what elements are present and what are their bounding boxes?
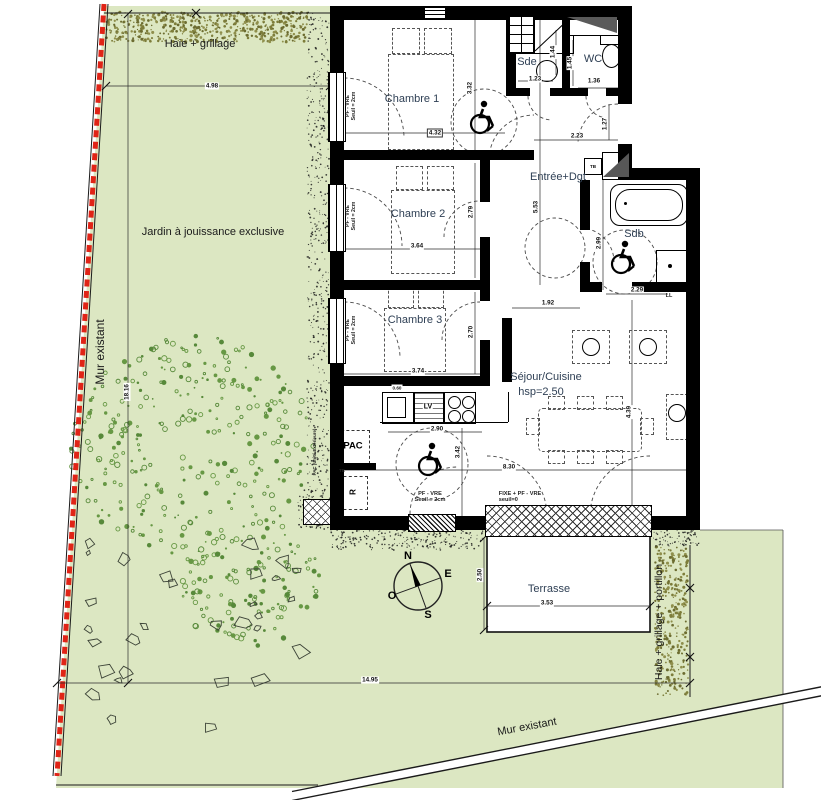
wall-segment bbox=[580, 282, 602, 292]
counter-edge bbox=[380, 422, 508, 423]
armchair-seat bbox=[639, 338, 657, 356]
room-label-sdb: Sdb bbox=[624, 228, 644, 240]
room-label-sejour: Séjour/Cuisine bbox=[510, 371, 582, 383]
compass-east: E bbox=[444, 568, 451, 580]
compass-west: O bbox=[388, 590, 397, 602]
bed-pillow bbox=[424, 28, 452, 54]
dim-label: 3.64 bbox=[410, 243, 424, 250]
wall-segment bbox=[562, 6, 570, 92]
wall-segment bbox=[506, 88, 530, 96]
vanity-unit bbox=[656, 250, 688, 286]
opening-note: PF - VRE Seuil = 2cm bbox=[345, 92, 357, 121]
wall-segment bbox=[330, 140, 344, 184]
shelf-unit bbox=[508, 16, 534, 54]
dim-label: 4.32 bbox=[427, 129, 443, 138]
dim-label: 0.60 bbox=[392, 385, 403, 392]
vent-opening bbox=[424, 7, 446, 20]
wall-segment bbox=[454, 516, 488, 530]
dim-label: 2.90 bbox=[430, 426, 444, 433]
opening-note: FIXE + PF - VRE seuil=0 bbox=[499, 491, 541, 503]
wall-segment bbox=[580, 180, 590, 230]
plant bbox=[668, 404, 686, 422]
wall-segment bbox=[330, 516, 408, 530]
room-label-sde: Sde bbox=[517, 56, 537, 68]
window bbox=[328, 184, 346, 252]
chair bbox=[577, 396, 594, 410]
chair bbox=[640, 418, 654, 435]
counter-edge bbox=[508, 392, 509, 422]
wall-segment bbox=[480, 237, 490, 301]
wall-segment bbox=[550, 88, 576, 96]
dim-label: 1.36 bbox=[587, 78, 601, 85]
kitchen-sink-bowl bbox=[387, 397, 406, 418]
chair bbox=[548, 450, 565, 464]
dim-label: 8.30 bbox=[502, 464, 516, 471]
wall-segment bbox=[686, 168, 700, 530]
dim-label: 3.53 bbox=[540, 600, 554, 607]
chair bbox=[577, 450, 594, 464]
wall-segment bbox=[480, 160, 490, 202]
wall-segment bbox=[576, 88, 588, 96]
burner bbox=[462, 396, 475, 409]
dim-label: 4.98 bbox=[205, 83, 219, 90]
dim-label: 1.45 bbox=[567, 56, 574, 70]
armchair-seat bbox=[582, 338, 600, 356]
bed-pillow bbox=[392, 28, 420, 54]
tb-label: TB bbox=[590, 164, 596, 169]
bed-pillow bbox=[427, 166, 454, 190]
wall-segment bbox=[330, 362, 344, 530]
opening-note: PF - VRE Seuil = 2cm bbox=[345, 316, 357, 345]
room-label-wc: WC bbox=[584, 53, 602, 65]
dim-label: 2.23 bbox=[570, 133, 584, 140]
pac-exterior-unit bbox=[303, 499, 331, 525]
dim-label: 1.23 bbox=[528, 76, 542, 83]
opening-threshold: Seuil = 2cm bbox=[351, 92, 357, 121]
dim-label: 1.27 bbox=[602, 117, 609, 131]
wall-segment bbox=[648, 516, 700, 530]
bathtub-drain bbox=[624, 202, 627, 205]
hedge-right-label: Haie + grillage + portillon bbox=[653, 564, 665, 680]
chair bbox=[606, 450, 623, 464]
burner bbox=[448, 396, 461, 409]
wall-left-label: Mur existant bbox=[93, 319, 107, 384]
room-label-chambre1: Chambre 1 bbox=[385, 93, 439, 105]
room-label-chambre3: Chambre 3 bbox=[388, 314, 442, 326]
dim-label: 1.92 bbox=[541, 300, 555, 307]
window-hatched bbox=[408, 514, 456, 532]
pac-label: PAC bbox=[343, 441, 362, 452]
dim-label: 3.32 bbox=[467, 81, 474, 95]
hedge-top-label: Haie + grillage bbox=[165, 38, 236, 50]
garden-label: Jardin à jouissance exclusive bbox=[142, 226, 284, 238]
window bbox=[328, 298, 346, 364]
wall-segment bbox=[344, 280, 490, 290]
opening-threshold: seuil=0 bbox=[499, 497, 541, 503]
chair bbox=[548, 396, 565, 410]
dim-label: 4.39 bbox=[626, 405, 633, 419]
window bbox=[328, 72, 346, 142]
dishwasher-label: LV bbox=[423, 404, 433, 411]
ll-label: LL bbox=[666, 293, 673, 299]
dim-label: 3.42 bbox=[455, 445, 462, 459]
dim-label: 1.44 bbox=[550, 45, 557, 59]
fridge-label: R bbox=[349, 489, 358, 495]
opening-note: PF - VRE Seuil = 2cm bbox=[415, 491, 446, 503]
dim-label: 5.53 bbox=[533, 200, 540, 214]
wall-segment bbox=[480, 340, 490, 378]
wall-segment bbox=[344, 376, 490, 386]
dim-label: 18.16 bbox=[124, 383, 131, 401]
wall-segment bbox=[344, 150, 534, 160]
room-label-terrasse: Terrasse bbox=[528, 583, 570, 595]
bed-pillow bbox=[396, 166, 423, 190]
chair bbox=[526, 418, 540, 435]
compass-north: N bbox=[404, 550, 412, 562]
floor-plan-canvas: TB LV PAC R TE LL PAC (Unité Extérieure)… bbox=[0, 0, 821, 800]
room-hsp-label: hsp=2.50 bbox=[518, 386, 564, 398]
dim-label: 2.29 bbox=[630, 287, 644, 294]
wheelchair-icon bbox=[471, 101, 493, 133]
bed bbox=[391, 190, 455, 274]
te-label: TE bbox=[339, 468, 345, 474]
room-label-entree: Entrée+Dgt bbox=[530, 171, 586, 183]
dim-label: 2.79 bbox=[468, 205, 475, 219]
dim-label: 2.50 bbox=[477, 568, 484, 582]
chair bbox=[606, 396, 623, 410]
dim-label: 2.99 bbox=[596, 236, 603, 250]
pac-exterior-label: PAC (Unité Extérieure) bbox=[312, 429, 318, 476]
opening-note: PF - VRE Seuil = 2cm bbox=[345, 202, 357, 231]
dim-label: 14.95 bbox=[361, 677, 379, 684]
opening-threshold: Seuil = 2cm bbox=[351, 202, 357, 231]
bathtub-inner bbox=[615, 189, 683, 221]
wall-segment bbox=[606, 88, 632, 96]
tb-box: TB bbox=[584, 158, 602, 175]
opening-threshold: Seuil = 2cm bbox=[415, 497, 446, 503]
dim-label: 3.74 bbox=[411, 368, 425, 375]
wall-segment bbox=[330, 250, 344, 298]
wheelchair-icon bbox=[612, 241, 634, 273]
compass-south: S bbox=[424, 609, 431, 621]
dim-label: 2.70 bbox=[468, 325, 475, 339]
opening-threshold: Seuil = 2cm bbox=[351, 316, 357, 345]
vanity-drain bbox=[668, 264, 672, 268]
room-label-chambre2: Chambre 2 bbox=[391, 208, 445, 220]
sliding-door-terrasse bbox=[485, 505, 652, 537]
